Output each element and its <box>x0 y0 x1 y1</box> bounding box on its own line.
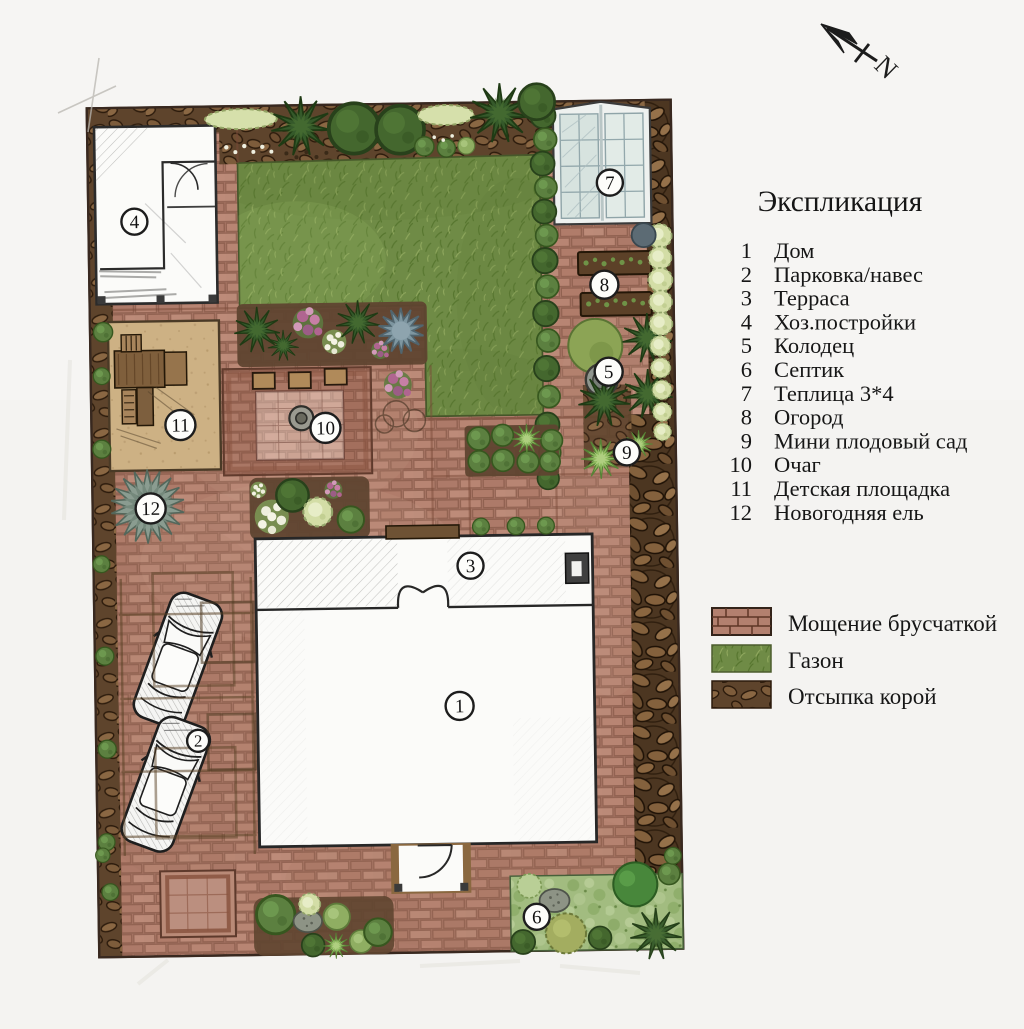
svg-text:6: 6 <box>741 357 752 382</box>
svg-text:11: 11 <box>171 415 190 436</box>
svg-text:4: 4 <box>130 212 140 233</box>
svg-text:11: 11 <box>730 476 752 501</box>
svg-text:Теплица 3*4: Теплица 3*4 <box>774 381 894 406</box>
svg-text:6: 6 <box>532 907 542 928</box>
svg-text:12: 12 <box>730 500 753 525</box>
svg-text:12: 12 <box>141 499 160 520</box>
svg-text:Огород: Огород <box>774 405 843 430</box>
svg-text:Детская площадка: Детская площадка <box>774 476 950 501</box>
svg-text:Газон: Газон <box>788 648 844 673</box>
svg-text:9: 9 <box>622 443 632 464</box>
svg-text:7: 7 <box>605 173 615 194</box>
svg-text:Новогодняя ель: Новогодняя ель <box>774 500 924 525</box>
svg-text:10: 10 <box>730 452 753 477</box>
svg-text:1: 1 <box>741 238 752 263</box>
svg-text:5: 5 <box>741 333 752 358</box>
svg-text:3: 3 <box>466 556 476 577</box>
svg-text:4: 4 <box>741 309 752 334</box>
svg-text:Экспликация: Экспликация <box>758 186 923 218</box>
svg-text:Колодец: Колодец <box>774 333 854 358</box>
svg-text:7: 7 <box>741 381 752 406</box>
svg-text:Мощение брусчаткой: Мощение брусчаткой <box>788 611 997 636</box>
svg-text:8: 8 <box>741 405 752 430</box>
svg-text:Парковка/навес: Парковка/навес <box>774 262 923 287</box>
svg-text:3: 3 <box>741 286 752 311</box>
svg-text:Хоз.постройки: Хоз.постройки <box>774 309 916 334</box>
svg-text:5: 5 <box>604 362 614 383</box>
svg-text:2: 2 <box>194 732 203 751</box>
svg-text:10: 10 <box>316 418 335 439</box>
svg-text:1: 1 <box>455 696 465 717</box>
svg-text:8: 8 <box>599 275 609 296</box>
svg-text:Септик: Септик <box>774 357 844 382</box>
svg-text:Терраса: Терраса <box>774 286 850 311</box>
svg-text:2: 2 <box>741 262 752 287</box>
svg-text:Дом: Дом <box>774 238 814 263</box>
svg-text:Очаг: Очаг <box>774 452 821 477</box>
svg-text:Отсыпка корой: Отсыпка корой <box>788 684 937 709</box>
svg-text:Мини плодовый сад: Мини плодовый сад <box>774 428 967 453</box>
svg-text:9: 9 <box>741 428 752 453</box>
